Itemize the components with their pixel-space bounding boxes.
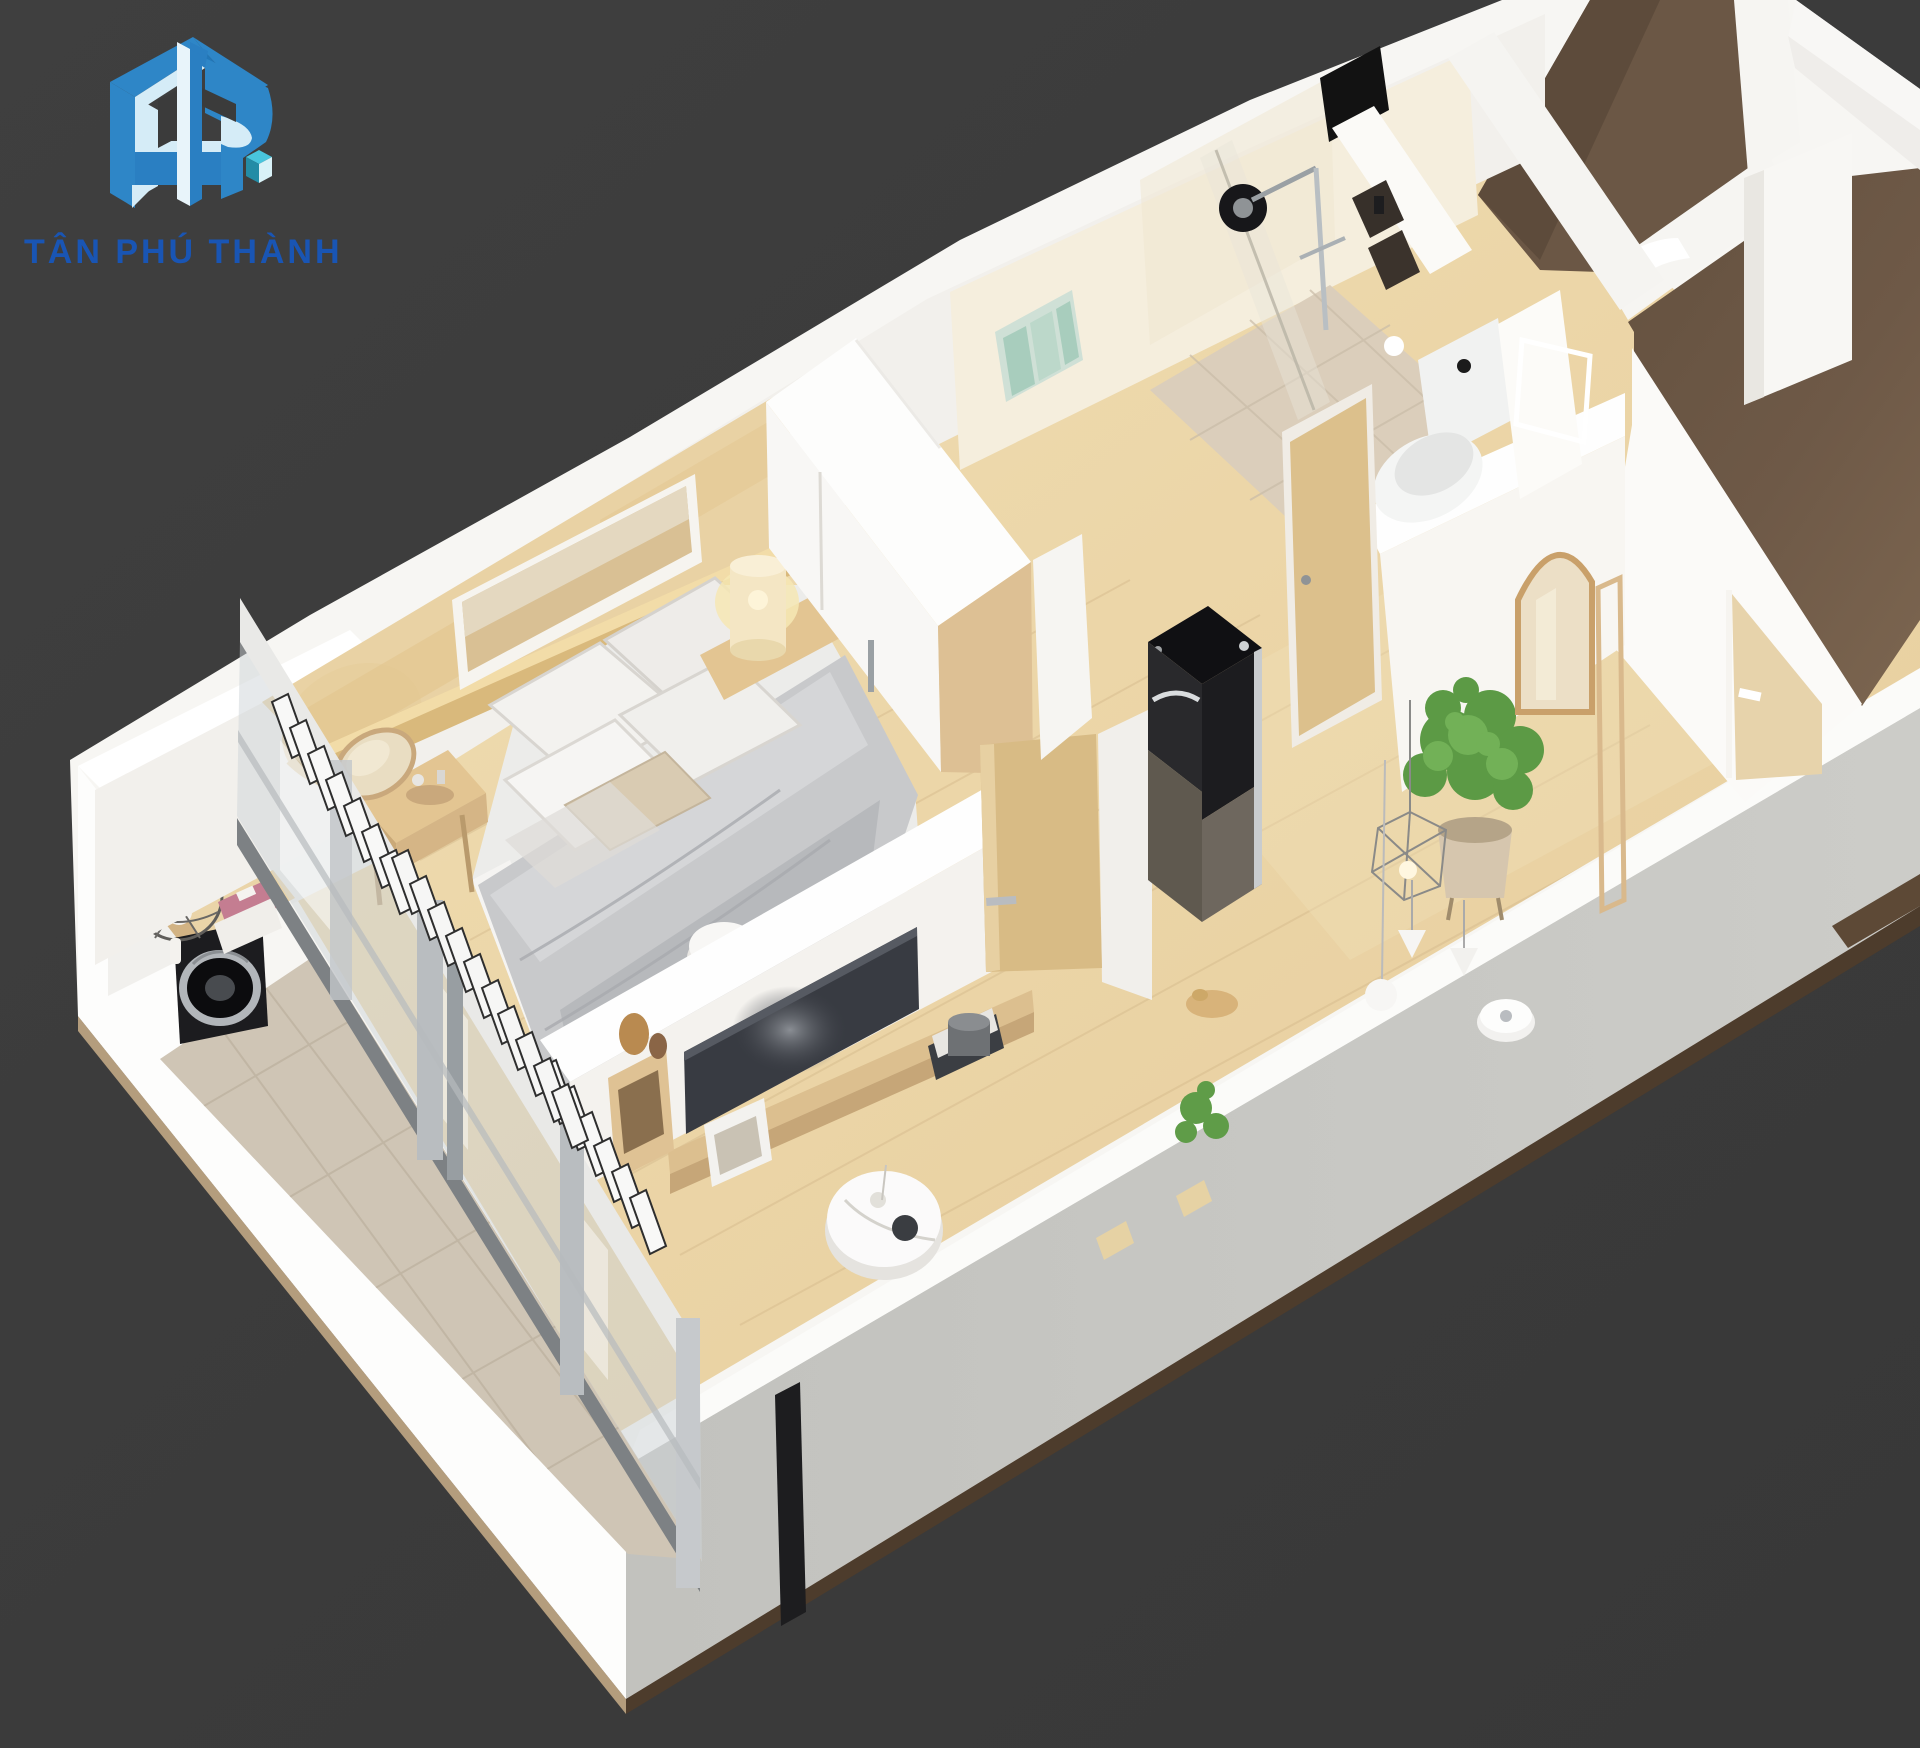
svg-text:TÂN PHÚ THÀNH: TÂN PHÚ THÀNH xyxy=(24,233,343,271)
